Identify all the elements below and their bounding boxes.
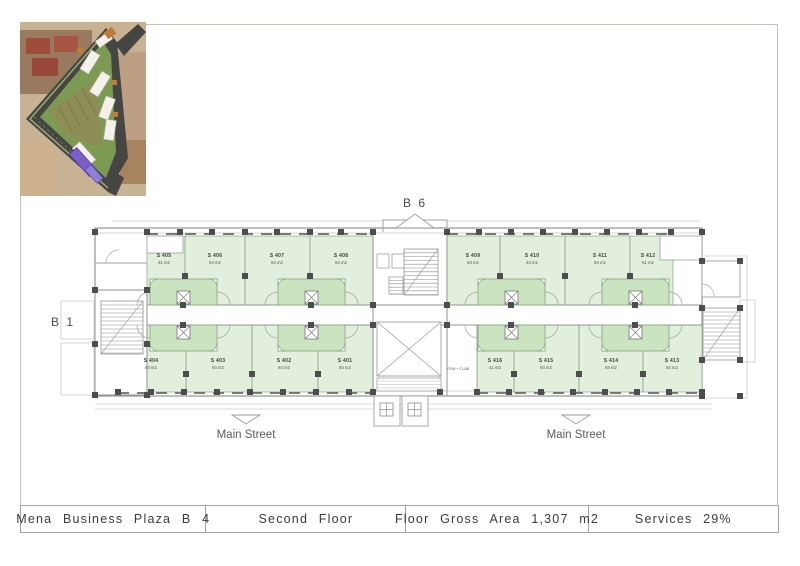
column — [627, 273, 633, 279]
column — [737, 357, 743, 363]
column — [444, 229, 450, 235]
column — [699, 357, 705, 363]
column — [666, 389, 672, 395]
b6-direction-arrow — [396, 214, 434, 228]
column — [632, 322, 638, 328]
street-direction-arrow — [232, 415, 260, 424]
column — [699, 229, 705, 235]
exterior-stair-outline — [61, 343, 94, 395]
gym-club-label: GYM + CLUB — [447, 367, 469, 371]
column — [209, 229, 215, 235]
column — [570, 389, 576, 395]
column — [444, 322, 450, 328]
project-title: Mena Business Plaza B 4 — [21, 506, 206, 532]
column — [92, 229, 98, 235]
column — [144, 287, 150, 293]
floor-title: Second Floor — [206, 506, 406, 532]
column — [508, 229, 514, 235]
column — [346, 389, 352, 395]
column — [182, 273, 188, 279]
column — [247, 389, 253, 395]
column — [370, 302, 376, 308]
column — [444, 302, 450, 308]
column — [370, 389, 376, 395]
column — [562, 273, 568, 279]
column — [576, 371, 582, 377]
column — [144, 341, 150, 347]
column — [308, 322, 314, 328]
column — [737, 305, 743, 311]
column — [242, 229, 248, 235]
column — [370, 229, 376, 235]
column — [177, 229, 183, 235]
column — [180, 322, 186, 328]
column — [640, 371, 646, 377]
column — [315, 371, 321, 377]
duct-shaft — [392, 254, 404, 268]
duct-shaft — [377, 254, 389, 268]
column — [183, 371, 189, 377]
column — [370, 322, 376, 328]
column — [249, 371, 255, 377]
column — [737, 393, 743, 399]
roof — [112, 80, 117, 85]
right-wing — [702, 256, 755, 398]
sports-court — [54, 36, 78, 52]
column — [307, 229, 313, 235]
column — [540, 229, 546, 235]
column — [180, 302, 186, 308]
column — [508, 322, 514, 328]
b1-label: B 1 — [51, 315, 75, 329]
sports-court — [32, 58, 58, 76]
elevator-shaft — [389, 277, 403, 294]
column — [538, 389, 544, 395]
column — [506, 389, 512, 395]
column — [497, 273, 503, 279]
corner-notch-left — [147, 236, 183, 253]
site-plan-inset — [20, 22, 146, 196]
column — [572, 229, 578, 235]
column — [602, 389, 608, 395]
column — [668, 229, 674, 235]
street-direction-arrow — [562, 415, 590, 424]
column — [92, 392, 98, 398]
column — [307, 273, 313, 279]
column — [511, 371, 517, 377]
column — [636, 229, 642, 235]
column — [144, 229, 150, 235]
gross-area-value: Floor Gross Area 1,307 m2 — [406, 506, 588, 532]
column — [474, 389, 480, 395]
column — [214, 389, 220, 395]
column — [508, 302, 514, 308]
column — [242, 273, 248, 279]
column — [476, 229, 482, 235]
column — [338, 229, 344, 235]
column — [699, 305, 705, 311]
title-block: Mena Business Plaza B 4 Second Floor Flo… — [20, 505, 779, 533]
corner-notch-right — [660, 236, 702, 260]
column — [313, 389, 319, 395]
sports-court — [26, 38, 50, 54]
column — [634, 389, 640, 395]
column — [437, 389, 443, 395]
b6-label: B 6 — [403, 196, 427, 210]
column — [308, 302, 314, 308]
drawing-sheet: Mena Business Plaza B 4 Second Floor Flo… — [0, 0, 800, 566]
column — [699, 393, 705, 399]
column — [699, 258, 705, 264]
column — [604, 229, 610, 235]
column — [144, 392, 150, 398]
column — [92, 287, 98, 293]
floor-plan-drawing: B 6 B 1 Main Street Main Street GYM + CL… — [0, 0, 800, 566]
column — [181, 389, 187, 395]
main-street-label: Main Street — [547, 429, 607, 441]
service-room — [702, 261, 740, 297]
floor-plan: B 6 B 1 Main Street Main Street GYM + CL… — [51, 196, 755, 441]
column — [115, 389, 121, 395]
services-value: Services 29% — [589, 506, 778, 532]
column — [274, 229, 280, 235]
main-street-label: Main Street — [217, 429, 277, 441]
column — [632, 302, 638, 308]
column — [92, 341, 98, 347]
column — [737, 258, 743, 264]
column — [280, 389, 286, 395]
desert-patch — [20, 140, 54, 196]
roof — [113, 112, 118, 117]
